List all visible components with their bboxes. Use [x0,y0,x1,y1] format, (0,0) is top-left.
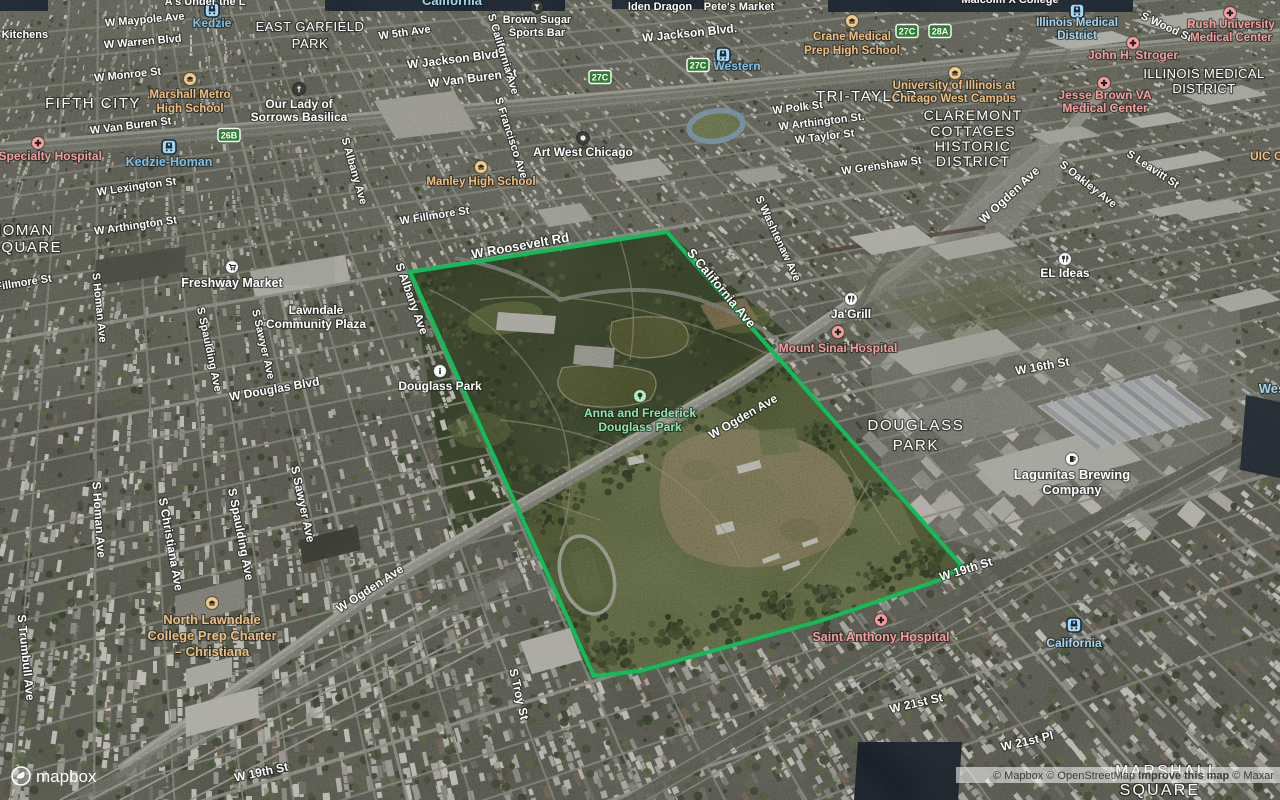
svg-text:27C: 27C [899,27,916,37]
svg-text:Freshway Market: Freshway Market [181,276,283,290]
svg-text:HISTORIC: HISTORIC [935,138,1011,154]
svg-text:© Mapbox © OpenStreetMap Impro: © Mapbox © OpenStreetMap Improve this ma… [993,770,1274,782]
svg-text:Art West Chicago: Art West Chicago [533,145,633,159]
svg-text:Pete's Market: Pete's Market [704,1,775,13]
svg-text:North Lawndale: North Lawndale [163,612,261,627]
svg-text:ILLINOIS MEDICAL: ILLINOIS MEDICAL [1143,66,1264,81]
svg-text:PARK: PARK [292,36,328,51]
svg-text:lden Dragon: lden Dragon [628,1,692,13]
svg-text:28A: 28A [932,27,949,37]
svg-text:A's Under the L: A's Under the L [165,0,246,8]
svg-text:California: California [1046,636,1102,650]
svg-text:CLAREMONT: CLAREMONT [924,107,1023,123]
svg-text:Marshall Metro: Marshall Metro [149,89,230,101]
svg-text:mapbox: mapbox [36,767,97,786]
svg-text:Rush University: Rush University [1187,19,1275,31]
svg-text:Illinois Medical: Illinois Medical [1036,17,1118,29]
svg-text:Prep High School: Prep High School [804,45,900,57]
svg-text:27C: 27C [592,73,609,83]
svg-text:SQUARE: SQUARE [0,239,62,256]
svg-text:Medical Center: Medical Center [1062,101,1148,115]
svg-text:California: California [422,0,483,8]
svg-text:Lagunitas Brewing: Lagunitas Brewing [1014,467,1130,482]
svg-text:Malcolm X College: Malcolm X College [961,0,1058,6]
svg-text:COTTAGES: COTTAGES [930,123,1016,139]
svg-text:Brown Sugar: Brown Sugar [503,14,572,26]
svg-text:Community Plaza: Community Plaza [266,317,366,331]
svg-text:Douglass Park: Douglass Park [598,420,682,434]
svg-text:Saint Anthony Hospital: Saint Anthony Hospital [812,630,949,644]
svg-text:n Kitchens: n Kitchens [0,29,48,41]
svg-text:DISTRICT: DISTRICT [936,153,1010,169]
svg-text:Ja'Grill: Ja'Grill [831,307,871,321]
svg-text:Wes: Wes [1259,381,1280,396]
svg-text:PARK: PARK [893,437,940,454]
svg-text:Anna and Frederick: Anna and Frederick [584,406,696,420]
svg-text:Medical Center: Medical Center [1190,32,1272,44]
svg-text:Sports Bar: Sports Bar [509,27,566,39]
svg-text:College Prep Charter: College Prep Charter [147,628,276,643]
svg-text:Sorrows Basilica: Sorrows Basilica [251,110,348,124]
svg-text:HOMAN: HOMAN [0,222,54,239]
svg-text:EAST GARFIELD: EAST GARFIELD [256,19,365,34]
svg-text:High School: High School [156,103,223,115]
svg-text:Kedzie: Kedzie [193,16,232,30]
svg-text:FIFTH CITY: FIFTH CITY [45,95,141,112]
svg-text:DISTRICT: DISTRICT [1172,81,1235,96]
svg-text:UIC Co: UIC Co [1250,149,1280,163]
svg-text:Douglass Park: Douglass Park [398,379,482,393]
svg-text:Crane Medical: Crane Medical [813,31,891,43]
svg-text:Chicago West Campus: Chicago West Campus [892,93,1016,105]
svg-text:Company: Company [1042,482,1102,497]
svg-text:EL Ideas: EL Ideas [1040,266,1089,280]
svg-text:27C: 27C [690,61,707,71]
svg-text:Mount Sinai Hospital: Mount Sinai Hospital [779,341,898,355]
svg-text:Manley High School: Manley High School [426,176,535,188]
svg-text:Western: Western [713,59,760,73]
svg-text:Jesse Brown VA: Jesse Brown VA [1058,88,1151,102]
svg-text:SQUARE: SQUARE [1120,782,1201,799]
svg-text:– Christiana: – Christiana [175,644,250,659]
svg-text:26B: 26B [221,131,238,141]
svg-text:Our Lady of: Our Lady of [265,97,333,111]
svg-text:Lawndale: Lawndale [289,303,344,317]
svg-text:DOUGLASS: DOUGLASS [868,417,965,434]
svg-text:John H. Stroger: John H. Stroger [1088,48,1178,62]
svg-text:L Specialty Hospital: L Specialty Hospital [0,149,102,163]
svg-text:District: District [1057,30,1097,42]
svg-text:University of Illinois at: University of Illinois at [893,80,1016,92]
svg-text:Kedzie-Homan: Kedzie-Homan [126,155,213,169]
